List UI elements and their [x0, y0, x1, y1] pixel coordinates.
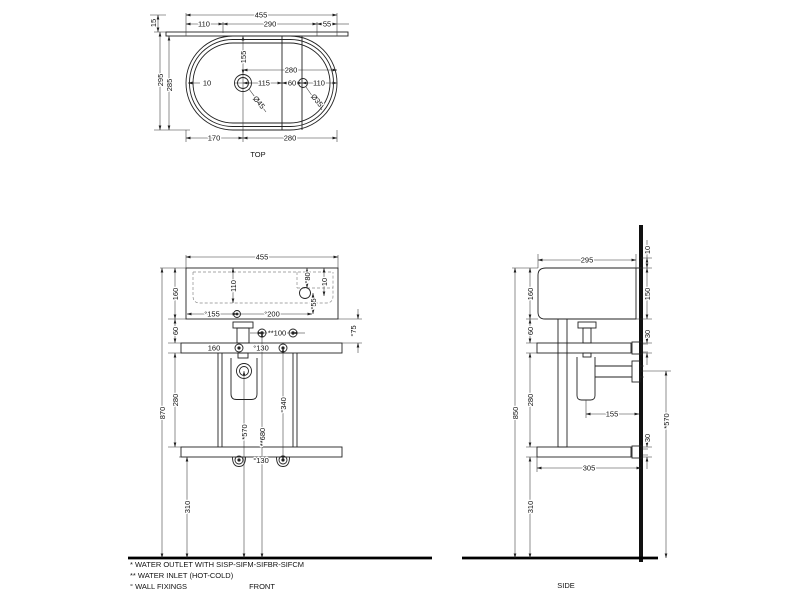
- dim-label: 170: [208, 134, 221, 143]
- view-title: SIDE: [557, 581, 575, 590]
- dim-label: 850: [511, 407, 520, 420]
- note-wall-fixings: ° WALL FIXINGS: [130, 582, 187, 591]
- dim-label: 280: [171, 394, 180, 407]
- dim-label: *570: [240, 424, 249, 439]
- back-ledge-outline: [166, 32, 348, 36]
- dim-label: °130: [253, 456, 269, 465]
- dim-label: 280: [284, 134, 297, 143]
- dim-label: 310: [183, 501, 192, 514]
- dim-label: 110: [198, 20, 210, 29]
- dim-label: 160: [208, 344, 221, 353]
- side-view-dimensions: [512, 240, 671, 558]
- siphon-bottle-side: [577, 357, 595, 400]
- view-title: TOP: [250, 150, 265, 159]
- drawing-page: 4551102905515295285155101156011028017028…: [0, 0, 800, 600]
- view-title: FRONT: [249, 582, 275, 591]
- dim-label: 295: [156, 74, 165, 87]
- dim-label: **680: [258, 428, 267, 446]
- dim-label: 10: [320, 278, 329, 286]
- wall-line: [639, 225, 643, 562]
- dim-label: 870: [158, 407, 167, 420]
- side-view-geometry: [462, 225, 658, 562]
- dim-label: °80: [303, 272, 312, 283]
- dim-label: °200: [264, 310, 280, 319]
- dim-label: °130: [253, 344, 269, 353]
- dim-label: 115: [258, 79, 270, 88]
- outlet-pipe: [595, 366, 632, 377]
- dim-label: 160: [526, 288, 535, 301]
- dim-label: 110: [229, 280, 238, 292]
- top-view-labels: 4551102905515295285155101156011028017028…: [149, 11, 331, 160]
- dim-label: 155: [239, 51, 248, 64]
- dim-label: °155: [204, 310, 220, 319]
- upper-bracket-rail-side: [537, 343, 631, 353]
- side-view: 29585016060280310101503030*570155305SIDE: [462, 225, 671, 590]
- front-view-labels: 45587016060280310110°8010°55°155°200**10…: [158, 253, 358, 592]
- note-water-outlet: * WATER OUTLET WITH SISP-SIFM-SIFBR-SIFC…: [130, 560, 304, 569]
- basin-side-outline: [538, 268, 641, 319]
- dim-label: °55: [309, 298, 318, 309]
- outlet-wall-flange: [632, 361, 640, 382]
- dim-label: 60: [526, 327, 535, 335]
- drain-flange: [233, 322, 253, 328]
- dim-label: 455: [255, 11, 268, 20]
- dim-label: 295: [581, 256, 594, 265]
- dim-label: 60: [288, 79, 296, 88]
- dim-label: 150: [643, 288, 652, 301]
- dim-label: 305: [583, 464, 596, 473]
- note-water-inlet: ** WATER INLET (HOT-COLD): [130, 571, 234, 580]
- tap-hole-front: [300, 288, 311, 299]
- dim-label: 110: [313, 79, 325, 88]
- dim-label: 160: [171, 288, 180, 301]
- lower-bracket-rail-side: [537, 447, 631, 457]
- dim-label: 455: [256, 253, 269, 262]
- dim-label: 60: [171, 327, 180, 335]
- dim-label: 290: [264, 20, 277, 29]
- dim-label: °75: [349, 325, 358, 336]
- diameter-label: Ø45: [251, 94, 267, 111]
- dim-label: 55: [323, 20, 331, 29]
- dim-label: 10: [643, 246, 652, 254]
- dim-label: 10: [203, 79, 211, 88]
- dim-label: °340: [279, 397, 288, 413]
- dim-label: 30: [643, 330, 652, 338]
- top-view: 4551102905515295285155101156011028017028…: [149, 11, 349, 160]
- dim-label: 310: [526, 501, 535, 514]
- technical-drawing: 4551102905515295285155101156011028017028…: [0, 0, 800, 600]
- drain-tailpipe: [237, 328, 249, 343]
- dim-label: **100: [268, 329, 286, 338]
- drain-flange-side: [578, 322, 596, 328]
- dim-label: *570: [662, 413, 671, 428]
- frame-leg-side: [558, 319, 567, 447]
- side-view-labels: 29585016060280310101503030*570155305SIDE: [511, 246, 671, 590]
- dim-label: 30: [643, 434, 652, 442]
- legend-notes: * WATER OUTLET WITH SISP-SIFM-SIFBR-SIFC…: [130, 560, 304, 591]
- dim-label: 285: [165, 79, 174, 92]
- dim-label: 155: [606, 410, 619, 419]
- front-view: 45587016060280310110°8010°55°155°200**10…: [128, 253, 432, 592]
- dim-label: 280: [285, 66, 298, 75]
- dim-label: 15: [149, 19, 158, 27]
- dim-label: 280: [526, 394, 535, 407]
